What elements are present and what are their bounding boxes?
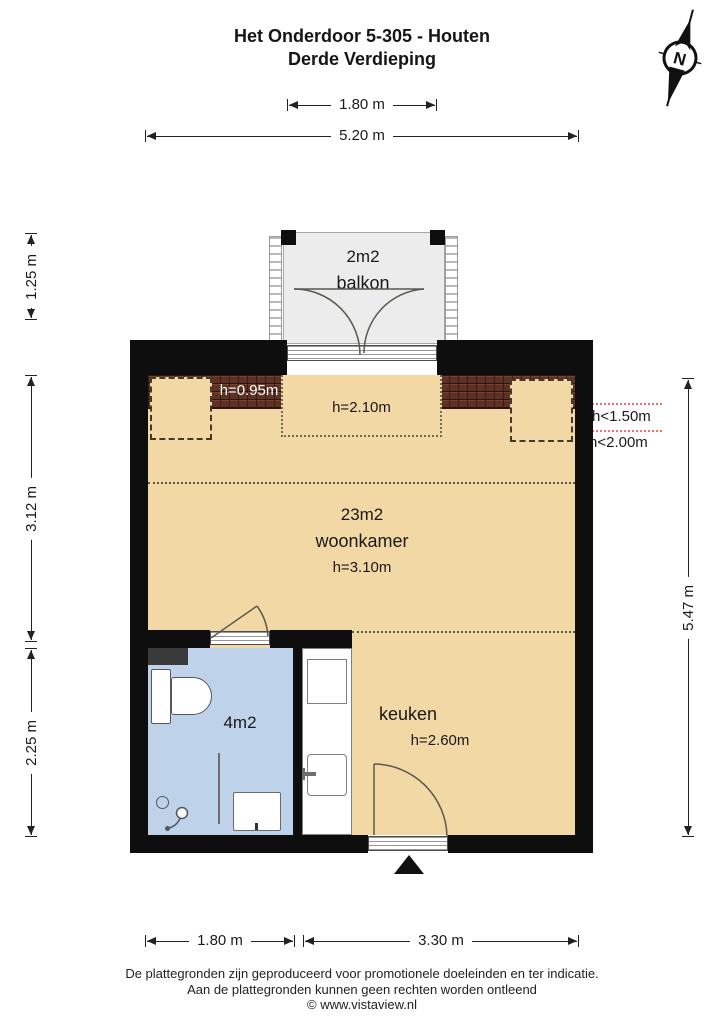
- balcony-railing-right: [445, 236, 458, 342]
- footer-disclaimer: De plattegronden zijn geproduceerd voor …: [0, 966, 724, 1013]
- footer-line2: Aan de plattegronden kunnen geen rechten…: [0, 982, 724, 998]
- room-label-balkon: 2m2 balkon: [282, 244, 444, 296]
- footer-line1: De plattegronden zijn geproduceerd voor …: [0, 966, 724, 982]
- balkon-name: balkon: [282, 270, 444, 296]
- floorplan-canvas: Het Onderdoor 5-305 - Houten Derde Verdi…: [0, 0, 724, 1024]
- badkamer-area: 4m2: [200, 710, 280, 736]
- bathroom-door-threshold: [210, 631, 270, 645]
- toilet-tank: [151, 669, 171, 724]
- dim-label: 2.25 m: [23, 712, 40, 774]
- wall-top-right: [437, 340, 593, 375]
- title-line1: Het Onderdoor 5-305 - Houten: [0, 25, 724, 48]
- woonkamer-area: 23m2: [252, 502, 472, 528]
- label-height-edge: h=0.95m: [203, 381, 295, 401]
- wall-top-left: [130, 340, 287, 375]
- dim-label: 3.12 m: [23, 478, 40, 540]
- ceiling-contour-line: [148, 482, 575, 484]
- balkon-area: 2m2: [282, 244, 444, 270]
- entrance-arrow-icon: [394, 855, 424, 874]
- wall-bathroom-top-right: [270, 630, 352, 648]
- shower-drain-icon: [156, 796, 169, 809]
- kitchen-divider-line: [352, 631, 575, 633]
- duct-shaft: [148, 648, 188, 665]
- dim-label: 5.47 m: [680, 577, 697, 639]
- keuken-height: h=2.60m: [378, 731, 502, 751]
- dim-left-balcony: 1.25 m: [25, 233, 37, 320]
- dim-label: 5.20 m: [331, 130, 393, 142]
- dim-left-living: 3.12 m: [25, 375, 37, 642]
- kitchen-appliance: [307, 659, 347, 704]
- title-line2: Derde Verdieping: [0, 48, 724, 71]
- wall-bathroom-top-left: [130, 630, 210, 648]
- dim-right-total: 5.47 m: [682, 378, 694, 837]
- compass-rose-icon: N: [638, 8, 722, 108]
- balcony-railing-left: [269, 236, 282, 342]
- height-marker-label-150: h<1.50m: [592, 408, 651, 425]
- balcony-post-left: [281, 230, 296, 245]
- shower-screen: [218, 753, 220, 824]
- page-title: Het Onderdoor 5-305 - Houten Derde Verdi…: [0, 25, 724, 71]
- dim-label: 1.25 m: [23, 246, 40, 308]
- footer-credit: © www.vistaview.nl: [0, 997, 724, 1013]
- wall-bottom-left: [130, 835, 368, 853]
- dim-bottom-bath: 1.80 m: [145, 935, 295, 947]
- dim-top-total: 5.20 m: [145, 130, 579, 142]
- washbasin-tap-icon: [255, 823, 258, 830]
- dim-label: 3.30 m: [410, 935, 472, 947]
- height-marker-label-200: h<2.00m: [589, 434, 648, 451]
- dim-label: 1.80 m: [331, 99, 393, 111]
- wall-bathroom-right: [293, 645, 302, 837]
- label-height-mid: h=2.10m: [308, 398, 415, 418]
- dim-top-balcony: 1.80 m: [287, 99, 437, 111]
- woonkamer-name: woonkamer: [252, 528, 472, 554]
- dim-bottom-kitchen: 3.30 m: [303, 935, 579, 947]
- woonkamer-height: h=3.10m: [252, 554, 472, 581]
- keuken-name: keuken: [338, 701, 478, 727]
- dim-left-bath: 2.25 m: [25, 648, 37, 837]
- balcony-door-threshold: [287, 345, 437, 361]
- balcony-post-right: [430, 230, 445, 245]
- wall-left: [130, 340, 148, 853]
- wall-bottom-right: [448, 835, 593, 853]
- roof-window-right: [510, 379, 573, 442]
- room-label-woonkamer: 23m2 woonkamer h=3.10m: [252, 502, 472, 581]
- dim-label: 1.80 m: [189, 935, 251, 947]
- kitchen-faucet-spout: [303, 772, 316, 776]
- entrance-door-threshold: [368, 836, 448, 851]
- wall-right: [575, 340, 593, 853]
